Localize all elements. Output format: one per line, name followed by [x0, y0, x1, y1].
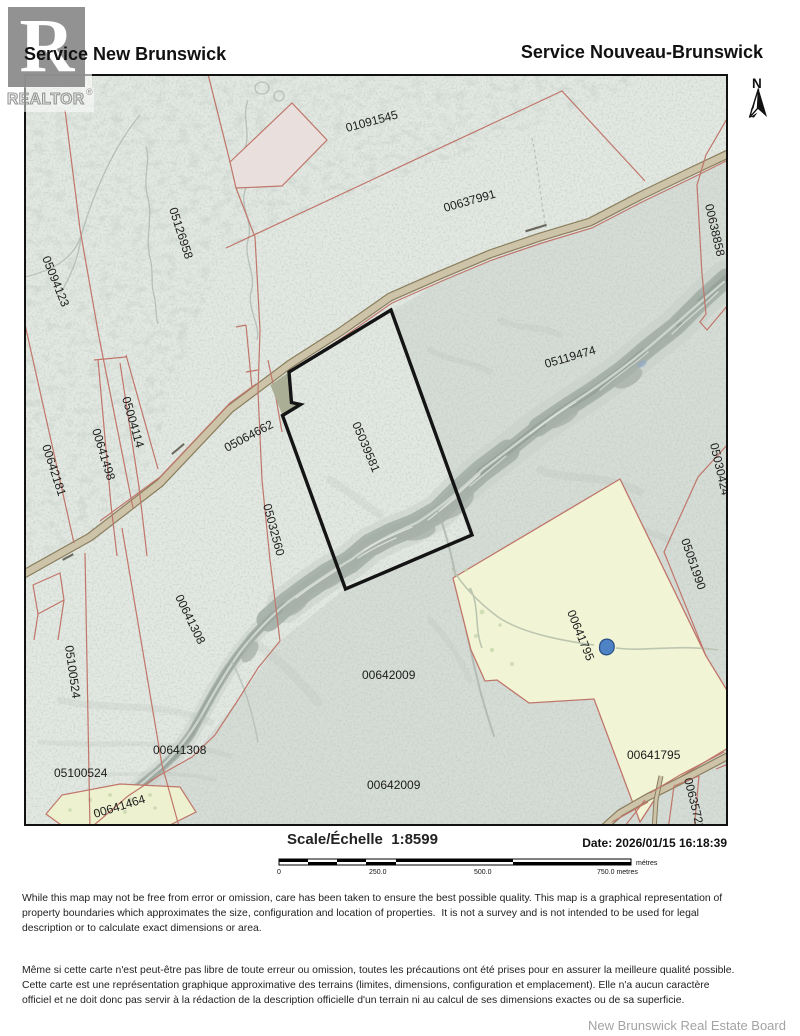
- svg-text:0: 0: [277, 869, 281, 876]
- svg-text:750.0 metres: 750.0 metres: [597, 869, 638, 876]
- svg-text:métres: métres: [636, 860, 658, 867]
- svg-text:500.0: 500.0: [474, 869, 492, 876]
- svg-text:05100524: 05100524: [54, 766, 108, 780]
- svg-text:00641795: 00641795: [627, 748, 681, 762]
- svg-text:250.0: 250.0: [369, 869, 387, 876]
- svg-text:N: N: [752, 76, 762, 91]
- svg-text:00642009: 00642009: [367, 778, 421, 792]
- svg-text:00642009: 00642009: [362, 668, 416, 682]
- svg-text:00641308: 00641308: [153, 743, 207, 757]
